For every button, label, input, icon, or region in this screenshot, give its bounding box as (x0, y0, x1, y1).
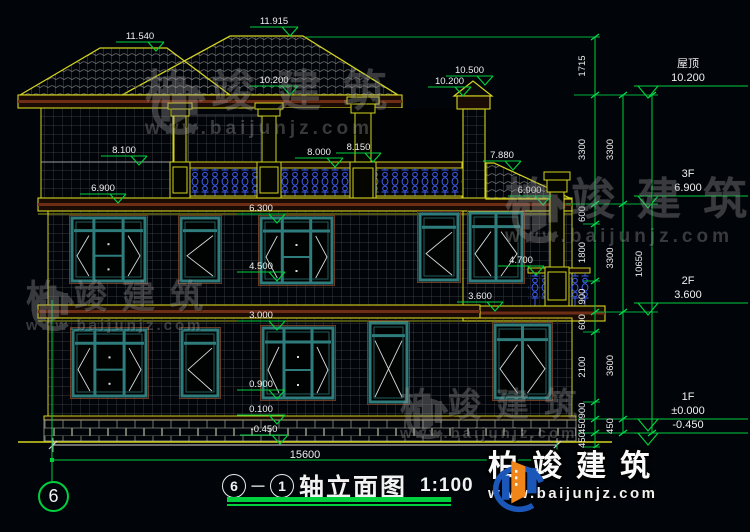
dim-value: 450 (605, 418, 616, 434)
elevation-marker-value: 11.540 (126, 31, 154, 42)
dim-value: 10650 (634, 251, 645, 277)
elevation-marker-value: 10.200 (435, 76, 464, 87)
elevation-marker-value: 10.200 (259, 75, 288, 86)
level-name: 2F (682, 275, 695, 287)
level-marker-triangle (638, 433, 658, 445)
level-value: 10.200 (671, 72, 705, 84)
elevation-marker-value: 8.100 (112, 145, 136, 156)
elevation-marker-value: -0.450 (251, 424, 278, 435)
title-axis-start-bubble: 6 (222, 474, 246, 498)
brand-logo: 柏竣建筑 www.baijunjz.com (488, 452, 664, 502)
elevation-marker-value: 3.000 (249, 310, 273, 321)
elevation-marker-value: 4.500 (249, 261, 273, 272)
window (70, 216, 148, 284)
eave-fascia (18, 95, 402, 108)
dim-value: 3300 (577, 139, 588, 160)
level-name: 1F (682, 391, 695, 403)
level-marker-triangle (638, 196, 658, 208)
dim-value: 3600 (605, 355, 616, 376)
cad-canvas: 15600 1715330060018009006002100900450450… (0, 0, 750, 532)
elevation-marker-value: 0.100 (249, 404, 273, 415)
dim-value: 3300 (605, 139, 616, 160)
elevation-marker-value: 3.600 (468, 291, 492, 302)
dim-value: 2100 (577, 356, 588, 377)
elevation-marker-triangle (282, 27, 298, 36)
window (368, 321, 410, 405)
elevation-marker-value: 10.500 (455, 65, 484, 76)
level-name: 屋顶 (677, 57, 699, 70)
dim-value: 450 (577, 418, 588, 434)
elevation-marker-value: 4.700 (509, 255, 533, 266)
dim-value: 3300 (605, 247, 616, 268)
title-scale: 1:100 (420, 475, 474, 497)
level-marker-triangle (638, 86, 658, 98)
elevation-marker-value: 8.150 (347, 142, 371, 153)
level-value: ±0.000 (671, 405, 705, 417)
elevation-marker-value: 11.915 (260, 16, 288, 27)
bottom-dimension-value: 15600 (290, 449, 321, 461)
dim-value: 1800 (577, 242, 588, 263)
brand-logo-icon (488, 452, 544, 514)
title-dash: － (249, 473, 267, 499)
elevation-marker-value: 6.300 (249, 203, 273, 214)
level-value: -0.450 (672, 419, 703, 431)
elevation-marker-value: 6.900 (518, 185, 542, 196)
elevation-marker-value: 8.000 (307, 147, 331, 158)
elevation-marker-value: 7.880 (490, 150, 514, 161)
dim-value: 1715 (577, 55, 588, 76)
title-underline-thin (227, 504, 451, 506)
window (179, 216, 222, 284)
level-marker-triangle (638, 419, 658, 431)
title-underline (227, 497, 451, 502)
level-marker-triangle (638, 303, 658, 315)
third-floor-balustrade (186, 162, 462, 200)
window (180, 328, 221, 399)
level-value: 3.600 (674, 289, 702, 301)
dim-value: 600 (577, 206, 588, 222)
plinth (18, 416, 612, 442)
dim-value: 900 (577, 289, 588, 305)
axis-bubble-6: 6 (38, 481, 69, 512)
title-axis-end-bubble: 1 (270, 474, 294, 498)
elevation-marker-value: 0.900 (249, 379, 273, 390)
window (259, 216, 335, 286)
dim-value: 450 (577, 432, 588, 448)
window (493, 323, 553, 401)
level-name: 3F (682, 168, 695, 180)
window (71, 328, 149, 399)
elevation-marker-triangle (477, 76, 493, 85)
window (418, 212, 461, 283)
level-value: 6.900 (674, 182, 702, 194)
dim-value: 900 (577, 403, 588, 419)
dim-value: 600 (577, 314, 588, 330)
window (468, 211, 525, 284)
elevation-marker-value: 6.900 (91, 183, 115, 194)
